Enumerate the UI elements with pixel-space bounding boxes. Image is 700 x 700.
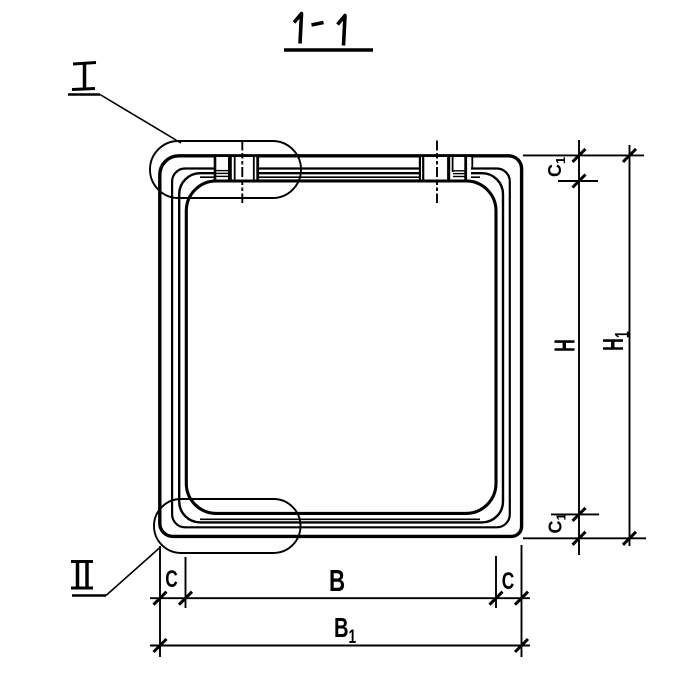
svg-text:H: H bbox=[549, 339, 581, 352]
svg-text:C: C bbox=[502, 568, 514, 594]
svg-text:C: C bbox=[165, 566, 177, 592]
svg-text:B: B bbox=[329, 563, 345, 597]
